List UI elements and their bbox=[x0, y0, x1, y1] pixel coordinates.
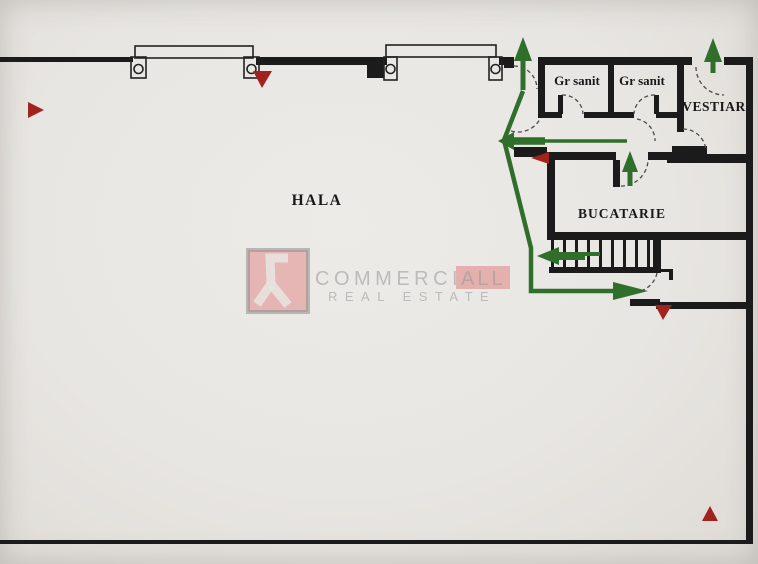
room-label-hala: HALA bbox=[292, 192, 343, 209]
room-label-gr-sanit-2: Gr sanit bbox=[619, 73, 665, 88]
floor-plan-drawing: HALA Gr sanit Gr sanit VESTIAR BUCATARIE… bbox=[0, 0, 758, 564]
exit-arrow-top-left bbox=[514, 37, 532, 90]
bucatarie-exit-arrow bbox=[622, 151, 638, 186]
watermark-brand-part2: ALL bbox=[461, 268, 506, 290]
red-triangle-marker-bottom-right bbox=[702, 506, 718, 521]
commerciall-logo-icon bbox=[248, 250, 308, 312]
red-triangle-marker-left-wall bbox=[28, 102, 44, 118]
room-label-gr-sanit-1: Gr sanit bbox=[554, 73, 600, 88]
watermark: COMMERCI ALL REAL ESTATE bbox=[248, 250, 510, 312]
watermark-tagline: REAL ESTATE bbox=[328, 289, 496, 304]
industrial-door-right bbox=[384, 45, 502, 80]
watermark-brand-part1: COMMERCI bbox=[315, 268, 462, 290]
lower-exit-arrow bbox=[613, 282, 648, 300]
red-triangle-marker-top-wall bbox=[253, 71, 272, 88]
room-label-vestiar: VESTIAR bbox=[682, 99, 746, 114]
stairs-arrow bbox=[537, 247, 600, 265]
industrial-door-left bbox=[131, 46, 259, 78]
floor-plan-photo: HALA Gr sanit Gr sanit VESTIAR BUCATARIE… bbox=[0, 0, 758, 564]
red-triangle-marker-lower-exit bbox=[655, 305, 672, 320]
room-label-bucatarie: BUCATARIE bbox=[578, 206, 666, 221]
exit-arrow-top-right bbox=[704, 38, 722, 73]
